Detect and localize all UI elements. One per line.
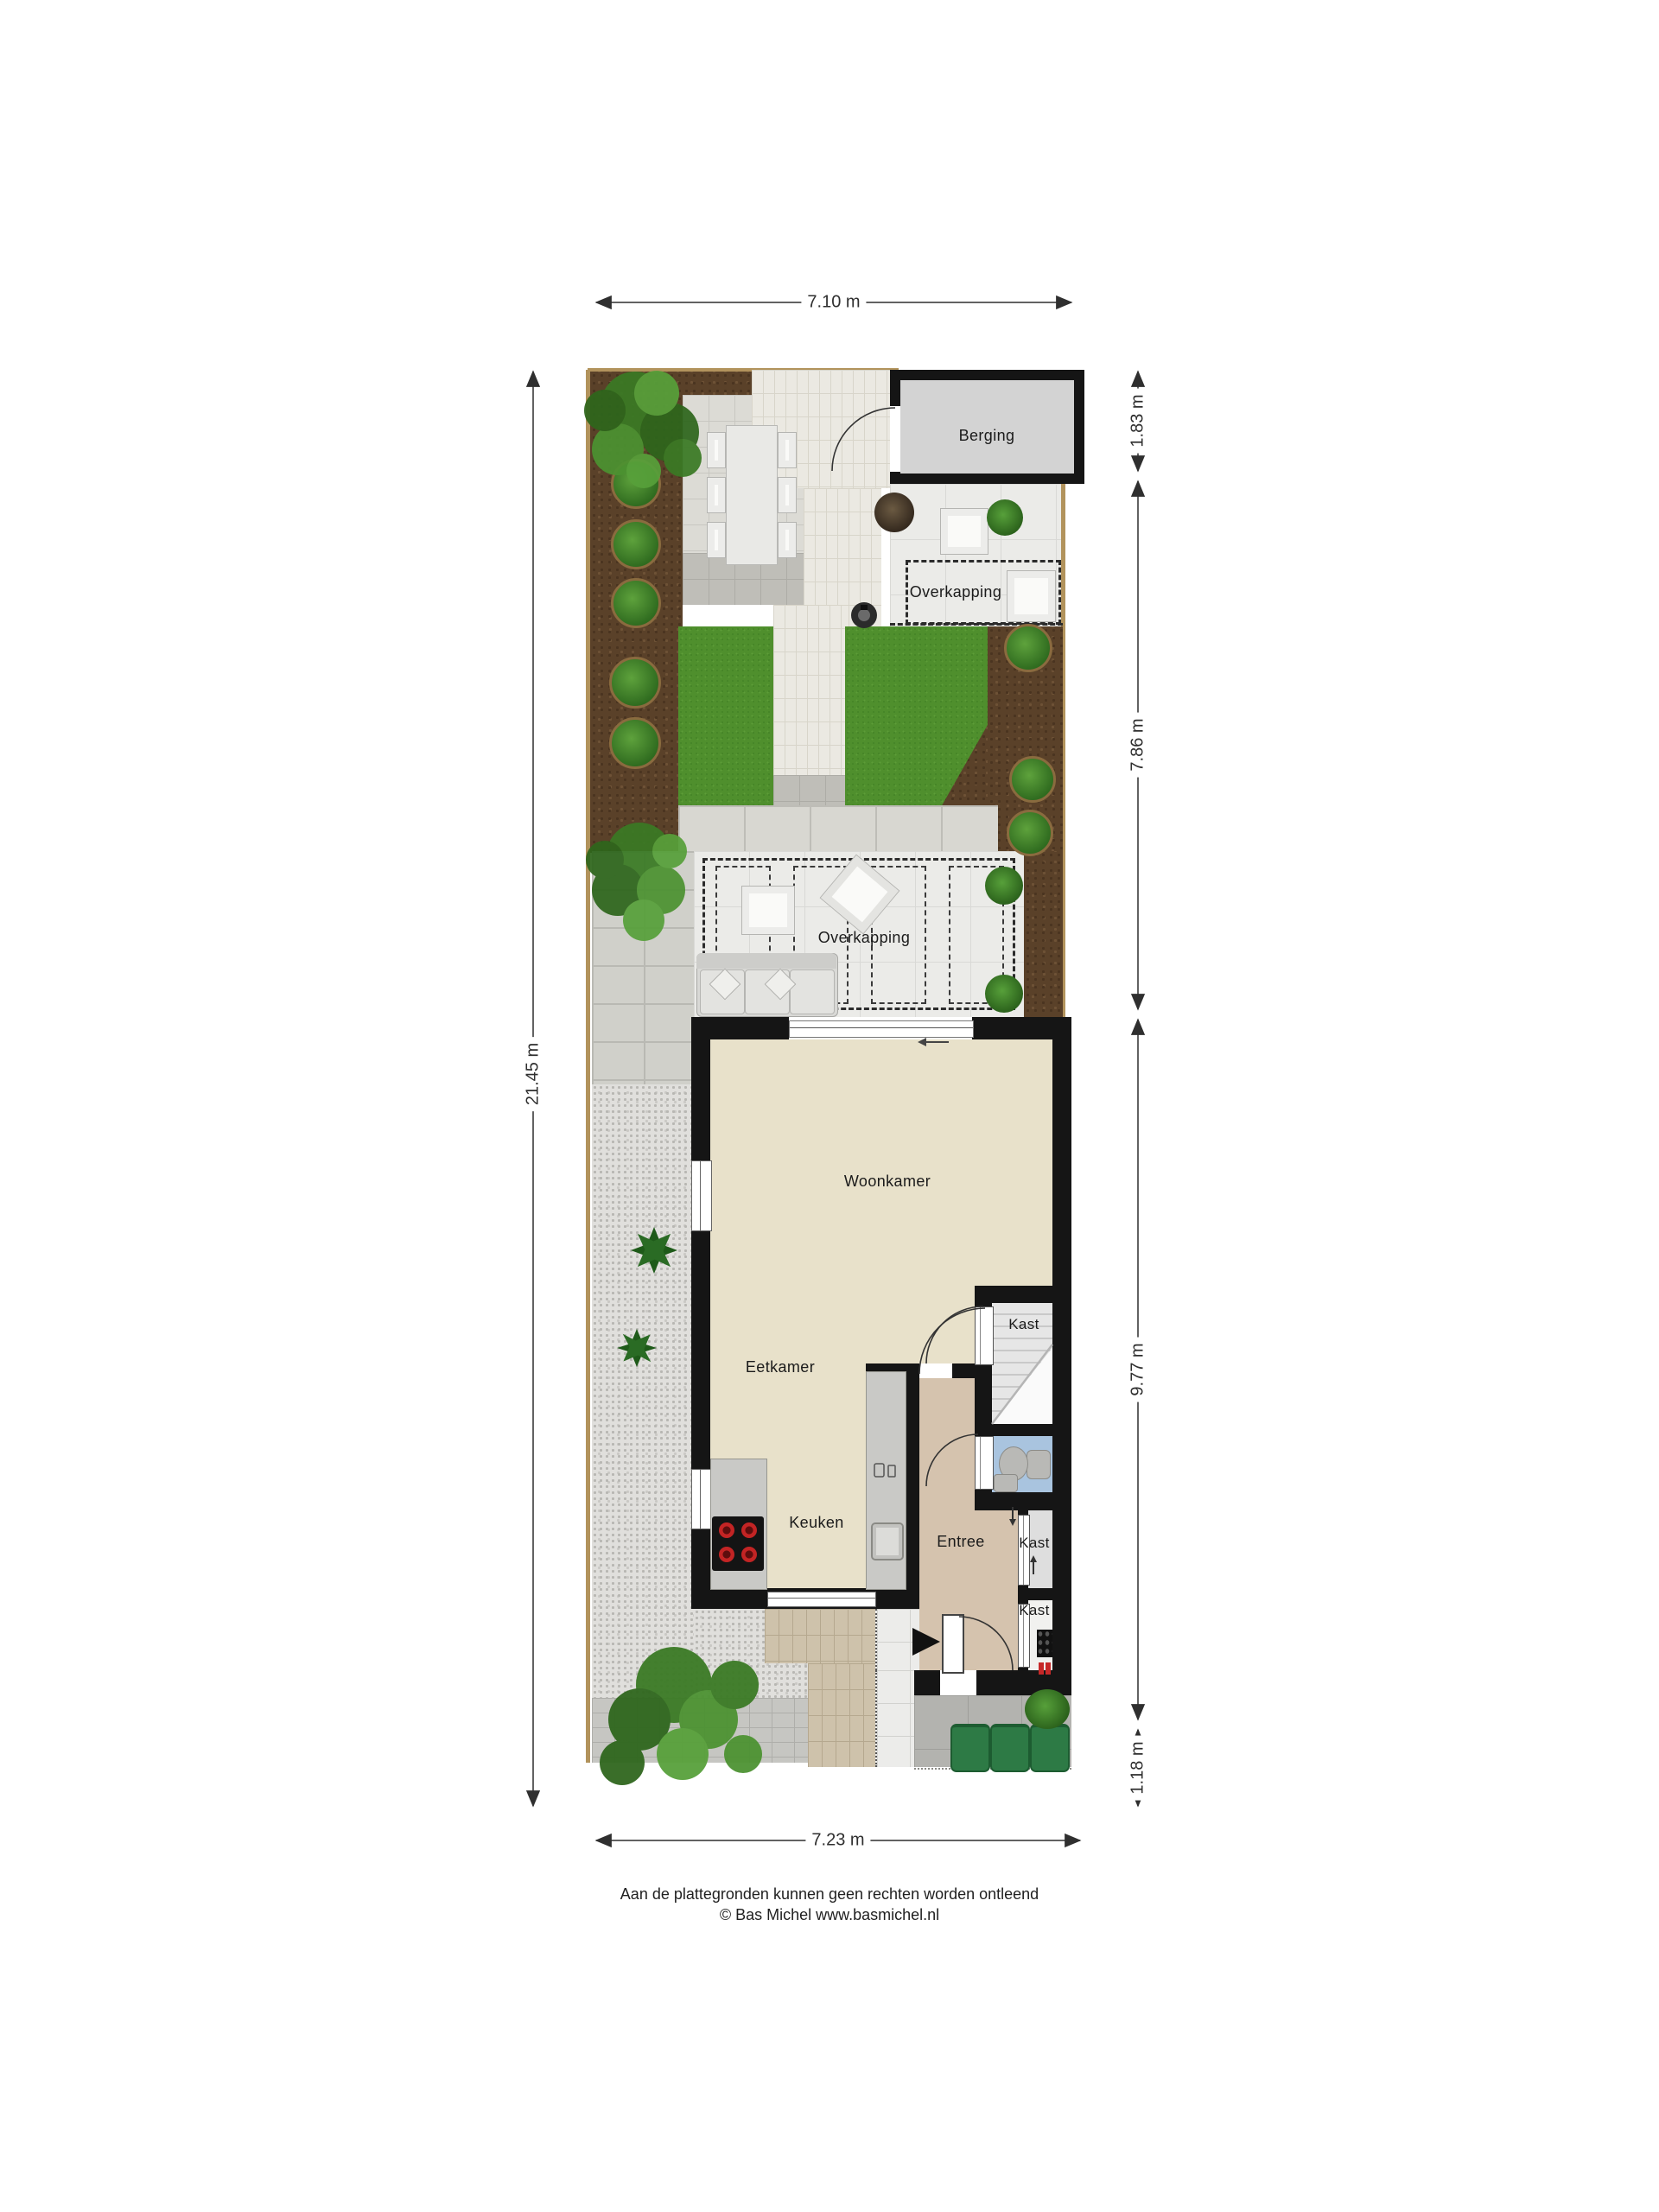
side-table [741, 886, 795, 935]
dimension-right-top: 1.83 m [1128, 388, 1148, 453]
bush-icon [985, 975, 1023, 1013]
meter-valve [1039, 1662, 1044, 1675]
room-label-woonkamer: Woonkamer [844, 1173, 931, 1192]
stove-burner [719, 1547, 734, 1562]
sofa-backrest [696, 953, 836, 969]
sliding-door [789, 1020, 974, 1038]
shrub-icon [609, 717, 661, 769]
path-end-pad [773, 775, 845, 805]
front-door-opening [940, 1670, 976, 1695]
window-keuken [691, 1469, 712, 1529]
garden-seat [940, 508, 988, 555]
garden-seat [1007, 570, 1056, 622]
bush-icon [874, 493, 914, 532]
room-label-keuken: Keuken [789, 1514, 843, 1533]
brick-patch-b [808, 1663, 875, 1767]
wall-kitchen-entree [905, 1371, 919, 1609]
entree-door-opening [919, 1363, 952, 1378]
entree-floor-top [919, 1378, 975, 1510]
bush-icon [987, 499, 1023, 536]
toilet-door [975, 1436, 994, 1490]
planting-strip-right2 [1024, 851, 1063, 1017]
toilet-tank [1027, 1450, 1051, 1479]
dining-table-icon [726, 425, 778, 565]
sink-icon [871, 1522, 904, 1560]
window-kitchen-bottom [767, 1592, 876, 1607]
entrance-walkway-2 [875, 1670, 916, 1767]
room-label-kast-mid: Kast [1019, 1535, 1050, 1552]
woonkamer-floor [710, 1039, 1052, 1286]
wheelie-bin-icon [1030, 1724, 1070, 1772]
footer-disclaimer: Aan de plattegronden kunnen geen rechten… [0, 1885, 1659, 1904]
gravel-side [592, 1084, 694, 1763]
shrub-icon [1009, 756, 1056, 803]
stove-burner [741, 1547, 757, 1562]
brick-patch-a [765, 1609, 875, 1663]
kast-door [975, 1306, 994, 1365]
footer-copyright: © Bas Michel www.basmichel.nl [0, 1906, 1659, 1924]
room-label-eetkamer: Eetkamer [746, 1358, 815, 1377]
dining-chair [707, 522, 726, 558]
berging-door-opening [890, 406, 900, 472]
shrub-icon [611, 519, 661, 569]
sofa-cushion [790, 969, 835, 1014]
room-label-berging: Berging [959, 427, 1015, 446]
room-label-kast-meter: Kast [1019, 1602, 1050, 1619]
room-label-overkapping-top: Overkapping [910, 583, 1001, 602]
room-label-overkapping-mid: Overkapping [818, 929, 910, 948]
dimension-top: 7.10 m [801, 293, 866, 313]
shrub-icon [1007, 810, 1053, 856]
dimension-right-garden: 7.86 m [1128, 712, 1148, 777]
lawn-left [678, 626, 773, 805]
wall-kast-divider [1018, 1588, 1071, 1600]
wall-toilet-bottom [975, 1492, 1071, 1510]
wheelie-bin-icon [990, 1724, 1030, 1772]
dimension-right-house: 9.77 m [1128, 1337, 1148, 1402]
stove-burner [719, 1522, 734, 1538]
dimension-bottom: 7.23 m [805, 1831, 870, 1851]
shrub-icon [609, 657, 661, 709]
dining-chair [778, 432, 797, 468]
shrub-icon [611, 578, 661, 628]
wall-stairs-toilet [975, 1424, 1071, 1436]
bush-icon [985, 867, 1023, 905]
meter-cupboard-box [1037, 1630, 1052, 1657]
meter-valve [1046, 1662, 1051, 1675]
window-eetkamer [691, 1160, 712, 1231]
dining-chair [778, 477, 797, 513]
room-label-entree: Entree [937, 1533, 984, 1552]
front-door-leaf [942, 1614, 964, 1674]
dimension-right-front: 1.18 m [1128, 1735, 1148, 1800]
stove-burner [741, 1522, 757, 1538]
garden-path-lower [773, 605, 845, 775]
toilet-sink [994, 1474, 1018, 1492]
paver-band [678, 805, 998, 855]
dining-chair [778, 522, 797, 558]
planting-border-top [683, 372, 752, 395]
block-paving [592, 1698, 808, 1763]
floorplan-page: { "plan": { "rooms": { "berging": "Bergi… [0, 0, 1659, 2212]
shrub-icon [611, 459, 661, 509]
dining-chair [707, 432, 726, 468]
shrub-icon [1004, 624, 1052, 672]
room-label-kast-stairs: Kast [1008, 1316, 1039, 1333]
wheelie-bin-icon [950, 1724, 990, 1772]
dimension-left: 21.45 m [524, 1037, 543, 1111]
dining-chair [707, 477, 726, 513]
side-path-pavers [592, 851, 694, 1084]
bush-icon [1025, 1689, 1070, 1729]
